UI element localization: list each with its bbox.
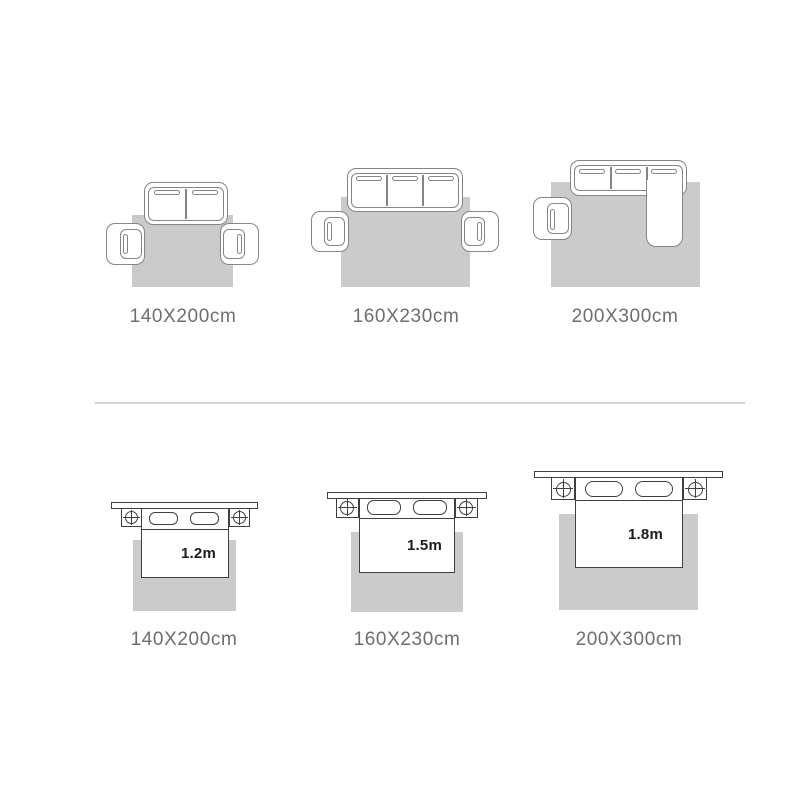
sofa-cushion-slot <box>154 190 180 195</box>
rug-size-caption: 160X230cm <box>353 306 460 328</box>
rug-size-caption: 140X200cm <box>131 629 238 651</box>
sofa-seat-divider <box>610 167 612 189</box>
armchair-slot <box>327 222 332 241</box>
lamp-cross-v <box>563 479 564 498</box>
bed-icon: 1.8m <box>575 500 683 568</box>
armchair-slot <box>550 209 555 230</box>
bed-width-label: 1.2m <box>181 545 216 562</box>
sofa-cushion-slot <box>192 190 218 195</box>
rug-size-caption: 140X200cm <box>130 306 237 328</box>
chaise-lounge-icon <box>646 180 683 247</box>
rug-size-caption: 200X300cm <box>576 629 683 651</box>
pillow-icon <box>635 481 673 497</box>
lamp-cross-v <box>347 499 348 516</box>
sofa-cushion-slot <box>428 176 454 181</box>
bed-width-label: 1.5m <box>407 537 442 554</box>
rug-size-caption: 160X230cm <box>354 629 461 651</box>
armchair-slot <box>477 222 482 241</box>
headboard-icon <box>111 502 258 509</box>
pillow-icon <box>367 500 401 515</box>
headboard-icon <box>534 471 723 478</box>
sofa-cushion-slot <box>356 176 382 181</box>
sofa-seat-divider <box>646 167 648 181</box>
sofa-cushion-slot <box>392 176 418 181</box>
nightstand-icon <box>121 508 142 527</box>
headboard-icon <box>327 492 487 499</box>
armchair-slot <box>237 234 242 254</box>
lamp-cross-v <box>131 510 132 525</box>
lamp-cross-v <box>695 479 696 498</box>
pillow-icon <box>149 512 178 525</box>
sofa-cushion-slot <box>651 169 677 174</box>
nightstand-icon <box>551 477 575 500</box>
rug-size-caption: 200X300cm <box>572 306 679 328</box>
rug-icon <box>132 215 233 287</box>
nightstand-icon <box>336 497 359 518</box>
pillow-icon <box>585 481 623 497</box>
rug-size-guide: 140X200cm 160X230cm <box>0 0 800 800</box>
lamp-cross-v <box>466 499 467 516</box>
nightstand-icon <box>455 497 478 518</box>
bed-icon: 1.5m <box>359 518 455 573</box>
sofa-cushion-slot <box>579 169 605 174</box>
pillow-icon <box>190 512 219 525</box>
nightstand-icon <box>683 477 707 500</box>
sofa-seat-divider <box>185 189 187 219</box>
sofa-cushion-slot <box>615 169 641 174</box>
pillow-icon <box>413 500 447 515</box>
lamp-cross-v <box>239 510 240 525</box>
nightstand-icon <box>229 508 250 527</box>
armchair-slot <box>123 234 128 254</box>
sofa-seat-divider <box>422 175 424 206</box>
section-divider <box>95 402 745 404</box>
bed-width-label: 1.8m <box>628 526 663 543</box>
bed-icon: 1.2m <box>141 529 229 578</box>
sofa-seat-divider <box>386 175 388 206</box>
